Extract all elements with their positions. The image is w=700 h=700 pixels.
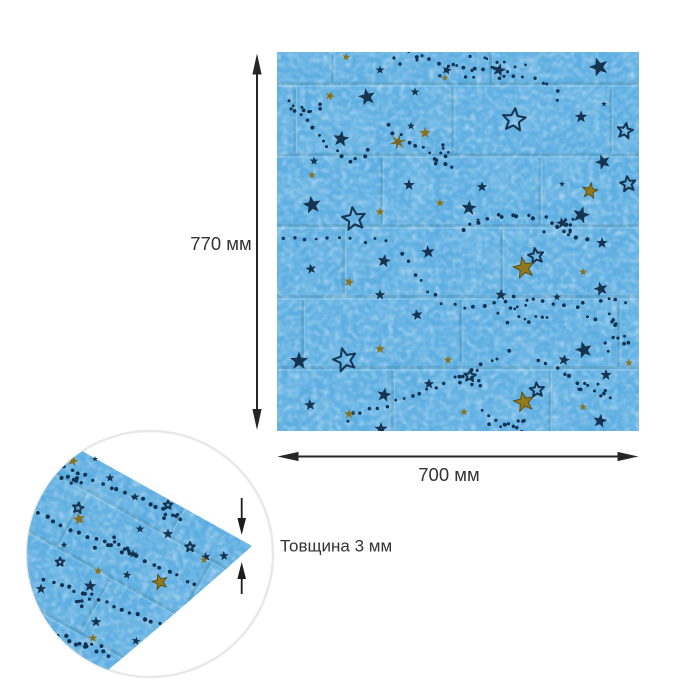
svg-text:770 мм: 770 мм (190, 233, 251, 254)
svg-text:700 мм: 700 мм (418, 464, 479, 485)
svg-text:Товщина 3 мм: Товщина 3 мм (280, 537, 392, 556)
